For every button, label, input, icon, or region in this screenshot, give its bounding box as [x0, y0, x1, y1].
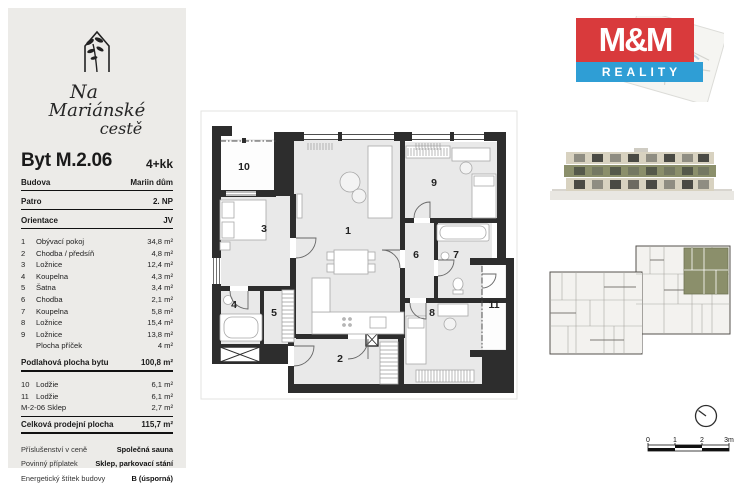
info-value: JV — [163, 216, 173, 225]
north-compass-icon — [692, 402, 720, 430]
project-name: Na Mariánské cestě — [21, 83, 173, 137]
unit-info-sidebar: Na Mariánské cestě Byt M.2.06 4+kk Budov… — [8, 8, 186, 468]
detail-row: Povinný příplatekSklep, parkovací stání — [21, 457, 173, 472]
house-plant-icon — [71, 26, 123, 76]
agency-logo: M&M REALITY — [576, 14, 732, 110]
scale-tick-3: 3m — [724, 437, 734, 444]
elevation-top-floor — [566, 152, 714, 164]
loggia-row: 11Lodžie6,1 m² — [21, 391, 173, 403]
scale-bar-segments — [648, 443, 729, 451]
elevation-ground-floor — [566, 178, 714, 191]
info-value: 2. NP — [153, 197, 173, 206]
room-row: 9Ložnice13,8 m² — [21, 329, 173, 341]
detail-row: Energetický štítek budovyB (úsporná) — [21, 472, 173, 486]
building-elevation-image — [550, 146, 734, 204]
room-row: 3Ložnice12,4 m² — [21, 259, 173, 271]
scale-tick-1: 1 — [673, 437, 677, 444]
room-label-10: 10 — [238, 161, 250, 173]
room-row: 2Chodba / předsíň4,8 m² — [21, 248, 173, 260]
brand-mark: M&M — [576, 18, 694, 62]
info-row-building: Budova Mariin dům — [21, 172, 173, 191]
info-value: Mariin dům — [130, 178, 173, 187]
room-label-9: 9 — [431, 177, 437, 189]
room-row: 7Koupelna5,8 m² — [21, 306, 173, 318]
floor-area-total-row: Podlahová plocha bytu 100,8 m² — [21, 355, 173, 372]
unit-layout-badge: 4+kk — [146, 157, 173, 172]
room-label-1: 1 — [345, 225, 351, 237]
detail-row: Příslušenství v ceněSpolečná sauna — [21, 443, 173, 458]
room-label-11: 11 — [488, 299, 499, 311]
floor-keyplan-image — [546, 240, 737, 358]
info-row-orientation: Orientace JV — [21, 210, 173, 229]
scale-bar: 0 1 2 3m — [645, 434, 735, 458]
unit-title: Byt M.2.06 — [21, 150, 112, 172]
unit-highlight — [684, 248, 728, 294]
scale-tick-0: 0 — [646, 437, 650, 444]
info-row-floor: Patro 2. NP — [21, 191, 173, 210]
room-row: 5Šatna3,4 m² — [21, 282, 173, 294]
partition-area-row: Plocha příček4 m² — [21, 340, 173, 352]
details-list: Příslušenství v ceněSpolečná sauna Povin… — [21, 443, 173, 486]
room-label-7: 7 — [453, 249, 459, 261]
room-label-4: 4 — [231, 299, 237, 311]
room-label-6: 6 — [413, 249, 419, 261]
room-label-5: 5 — [271, 307, 277, 319]
project-logo — [21, 26, 173, 81]
room-row: 4Koupelna4,3 m² — [21, 271, 173, 283]
floor-plan: 1 2 3 4 5 6 7 8 9 10 11 — [200, 110, 520, 402]
room-row: 8Ložnice15,4 m² — [21, 317, 173, 329]
room-list: 1Obývací pokoj34,8 m² 2Chodba / předsíň4… — [21, 236, 173, 352]
elevation-middle-floor — [564, 165, 716, 177]
brand-tagline: REALITY — [576, 62, 703, 82]
scale-tick-2: 2 — [700, 437, 704, 444]
room-row: 6Chodba2,1 m² — [21, 294, 173, 306]
room-row: 1Obývací pokoj34,8 m² — [21, 236, 173, 248]
loggia-row: 10Lodžie6,1 m² — [21, 379, 173, 391]
project-name-line3: cestě — [69, 121, 173, 137]
room-label-3: 3 — [261, 223, 267, 235]
total-sale-area-row: Celková prodejní plocha 115,7 m² — [21, 416, 173, 434]
info-label: Patro — [21, 197, 41, 206]
project-name-line2: Mariánské — [21, 102, 173, 120]
room-label-8: 8 — [429, 307, 435, 319]
room-label-2: 2 — [337, 353, 343, 365]
cellar-row: M-2-06 Sklep2,7 m² — [21, 402, 173, 414]
info-label: Budova — [21, 178, 50, 187]
info-label: Orientace — [21, 216, 58, 225]
